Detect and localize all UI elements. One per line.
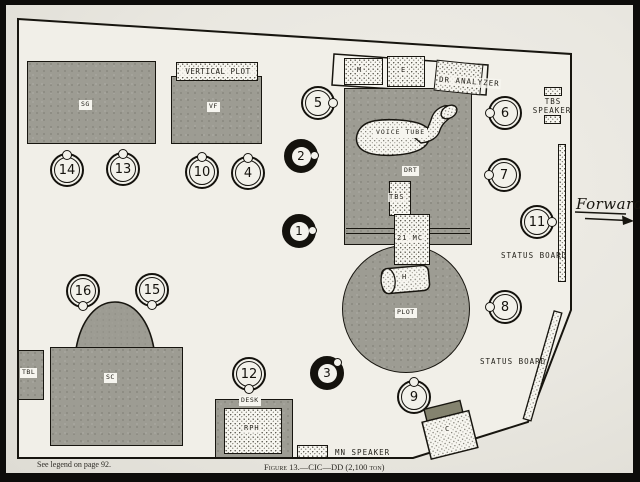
station-number: 5 — [303, 88, 333, 118]
status-board-vertical — [558, 144, 566, 282]
station-16: 16 — [66, 274, 100, 308]
station-number: 12 — [234, 359, 264, 389]
m-label: M — [356, 66, 363, 75]
station-number: 10 — [187, 157, 217, 187]
station-number: 7 — [489, 160, 519, 190]
station-number: 2 — [292, 147, 311, 166]
rph-label: RPH — [243, 424, 261, 433]
sc-label: SC — [104, 373, 117, 383]
e-label: E — [400, 66, 407, 75]
station-number: 3 — [318, 364, 337, 383]
station-5: 5 — [301, 86, 335, 120]
tbl-label: TBL — [20, 368, 37, 378]
figure-caption: Figure 13.—CIC—DD (2,100 ton) — [264, 462, 385, 472]
station-number: 14 — [52, 155, 82, 185]
drt-label: DRT — [402, 166, 419, 176]
station-number: 1 — [290, 222, 309, 241]
station-9: 9 — [397, 380, 431, 414]
station-7: 7 — [487, 158, 521, 192]
station-14: 14 — [50, 153, 84, 187]
status-board-upper-label: STATUS BOARD — [501, 251, 567, 261]
station-number: 4 — [233, 158, 263, 188]
station-number: 8 — [490, 292, 520, 322]
status-board-lower-label: STATUS BOARD — [480, 357, 546, 367]
tbs-speaker-box-upper — [544, 87, 562, 96]
station-number: 9 — [399, 382, 429, 412]
station-10: 10 — [185, 155, 219, 189]
station-1: 1 — [282, 214, 316, 248]
station-15: 15 — [135, 273, 169, 307]
h-label: H — [401, 273, 408, 282]
forward-direction-label: Forward — [576, 195, 640, 213]
station-number: 11 — [522, 207, 552, 237]
station-6: 6 — [488, 96, 522, 130]
facing-bump-icon — [333, 358, 342, 367]
mn-speaker-label: MN SPEAKER — [335, 448, 390, 458]
facing-bump-icon — [308, 226, 317, 235]
station-2: 2 — [284, 139, 318, 173]
station-13: 13 — [106, 152, 140, 186]
sg-label: SG — [79, 100, 92, 110]
21mc-label: 21 MC — [396, 234, 424, 243]
station-11: 11 — [520, 205, 554, 239]
tbs-speaker-box-lower — [544, 115, 561, 124]
voice-tube-label: VOICE TUBE — [374, 128, 427, 138]
station-4: 4 — [231, 156, 265, 190]
mn-speaker-box — [297, 445, 328, 458]
station-number: 15 — [137, 275, 167, 305]
tbs-label: TBS — [388, 193, 406, 202]
sc-console — [50, 347, 183, 446]
facing-bump-icon — [310, 151, 319, 160]
vf-label: VF — [207, 102, 220, 112]
c-label: C — [444, 425, 451, 434]
legend-note-caption: See legend on page 92. — [37, 460, 111, 469]
station-3: 3 — [310, 356, 344, 390]
station-8: 8 — [488, 290, 522, 324]
m-unit — [344, 58, 383, 85]
plot-label: PLOT — [395, 308, 417, 318]
station-12: 12 — [232, 357, 266, 391]
tbs-speaker-label-line2: SPEAKER — [530, 106, 574, 116]
station-number: 6 — [490, 98, 520, 128]
station-number: 13 — [108, 154, 138, 184]
vertical-plot-label: VERTICAL PLOT — [180, 67, 256, 77]
station-number: 16 — [68, 276, 98, 306]
desk-label: DESK — [239, 396, 261, 406]
scanned-figure-page: 14 13 10 4 5 2 1 6 7 11 8 16 15 12 3 9 S… — [0, 0, 640, 482]
